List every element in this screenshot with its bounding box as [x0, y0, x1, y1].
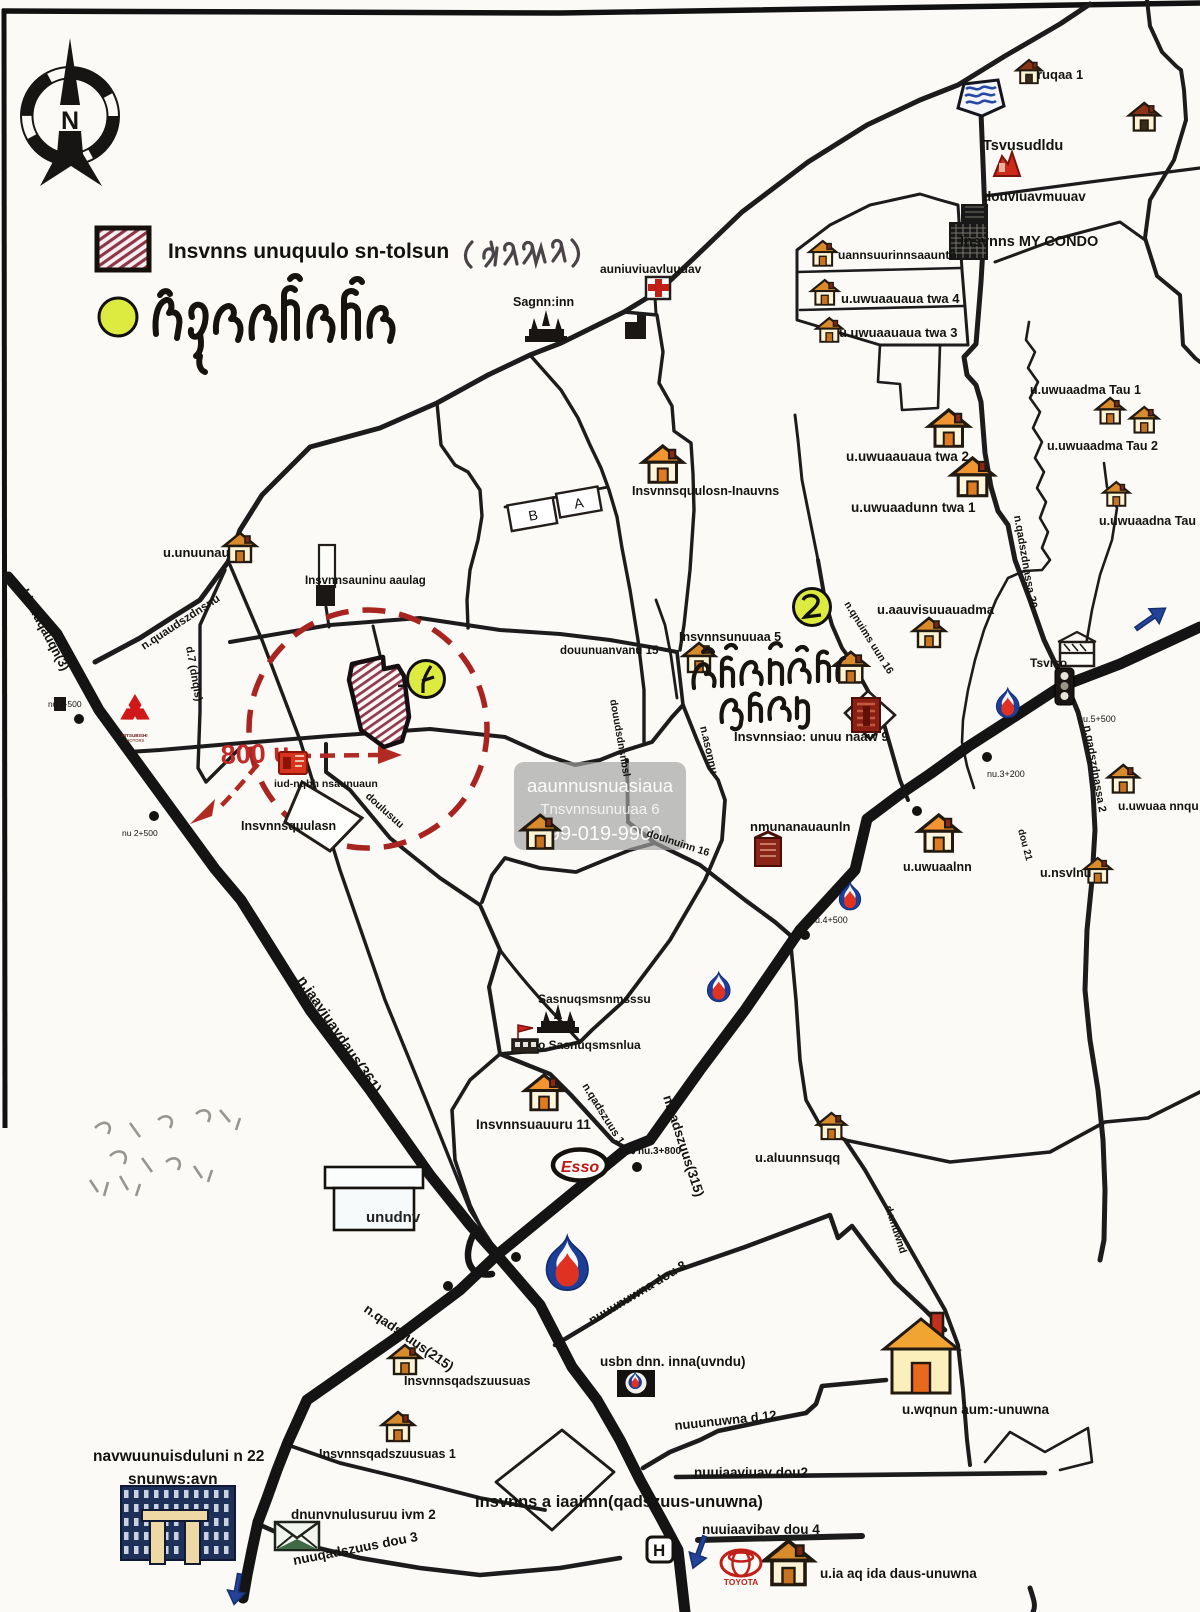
svg-text:Tnsvnnsunuuaa 6: Tnsvnnsunuuaa 6: [540, 801, 659, 818]
svg-text:iud-nqbh nsaunuaun: iud-nqbh nsaunuaun: [274, 778, 378, 790]
svg-text:TOYOTA: TOYOTA: [724, 1577, 759, 1587]
svg-text:Insvnnsunuuaa 5: Insvnnsunuuaa 5: [679, 630, 781, 644]
svg-text:u.uwuaauaua twa 2: u.uwuaauaua twa 2: [846, 449, 969, 464]
svg-text:nu.3+800: nu.3+800: [638, 1146, 682, 1157]
svg-text:Insvnnsiao: unuu naaw 9: Insvnnsiao: unuu naaw 9: [734, 729, 889, 744]
svg-text:u.wqnun aum:-unuwna: u.wqnun aum:-unuwna: [902, 1402, 1049, 1417]
svg-text:MOTORS: MOTORS: [126, 738, 145, 743]
svg-text:Insvnns a iaaimn(qadszuus-unuw: Insvnns a iaaimn(qadszuus-unuwna): [475, 1493, 763, 1511]
svg-text:Insvnnsauninu aaulag: Insvnnsauninu aaulag: [305, 575, 426, 587]
svg-text:N: N: [61, 107, 79, 135]
svg-text:Insvnnsqadszuusuas: Insvnnsqadszuusuas: [404, 1374, 530, 1388]
svg-text:u.nsvlnu: u.nsvlnu: [1040, 866, 1091, 880]
svg-text:nu.5+500: nu.5+500: [1078, 714, 1116, 724]
svg-text:u.aauvisuuauadma: u.aauvisuuauadma: [877, 602, 995, 617]
svg-text:nmunanauaunln: nmunanauaunln: [750, 819, 850, 834]
svg-text:douunuanvanu 15: douunuanvanu 15: [560, 645, 659, 657]
svg-text:Tsviso: Tsviso: [1030, 656, 1067, 670]
svg-text:Sasnuqsmsnmsssu: Sasnuqsmsnmsssu: [538, 992, 651, 1006]
svg-text:u.uwuaadunn twa 1: u.uwuaadunn twa 1: [851, 500, 976, 515]
svg-text:u.uwuaauaua twa 4: u.uwuaauaua twa 4: [841, 291, 960, 306]
svg-text:nu.3+200: nu.3+200: [987, 769, 1025, 779]
svg-text:unudnv: unudnv: [366, 1209, 421, 1226]
svg-text:snunws:avn: snunws:avn: [128, 1471, 218, 1488]
svg-text:u.uwuaauaua twa 3: u.uwuaauaua twa 3: [839, 325, 957, 340]
svg-text:nuuiaaviuav dou2: nuuiaaviuav dou2: [694, 1465, 808, 1480]
svg-text:navwuunuisduluni n 22: navwuunuisduluni n 22: [93, 1448, 264, 1465]
svg-text:Insvnnsquulasn: Insvnnsquulasn: [241, 819, 336, 833]
svg-text:ruqaa 1: ruqaa 1: [1037, 67, 1083, 82]
svg-text:o Sasnuqsmsnlua: o Sasnuqsmsnlua: [538, 1038, 641, 1052]
svg-text:Insvnnsuauuru 11: Insvnnsuauuru 11: [476, 1117, 591, 1132]
svg-text:nu.4+500: nu.4+500: [810, 915, 848, 925]
svg-text:u.uwuaadma Tau 2: u.uwuaadma Tau 2: [1047, 439, 1158, 453]
svg-text:Sagnn:inn: Sagnn:inn: [513, 295, 574, 309]
svg-text:Esso: Esso: [561, 1159, 599, 1176]
svg-text:nu 2+500: nu 2+500: [122, 828, 158, 838]
svg-text:Insvnnsquulosn-Inauvns: Insvnnsquulosn-Inauvns: [632, 484, 779, 498]
svg-text:u.uwuaadna Tau: u.uwuaadna Tau: [1099, 514, 1196, 528]
svg-text:nuuiaavibav dou 4: nuuiaavibav dou 4: [702, 1522, 820, 1537]
svg-text:dnunvnulusuruu ivm 2: dnunvnulusuruu ivm 2: [291, 1507, 436, 1522]
svg-text:H: H: [653, 1541, 665, 1560]
svg-text:Insvnnsqadszuusuas 1: Insvnnsqadszuusuas 1: [319, 1447, 456, 1461]
svg-text:usbn dnn. inna(uvndu): usbn dnn. inna(uvndu): [600, 1354, 745, 1369]
svg-text:u.unuunau: u.unuunau: [163, 545, 229, 560]
svg-text:u.uwuaalnn: u.uwuaalnn: [903, 860, 972, 874]
svg-text:uannsuurinnsaauntn: uannsuurinnsaauntn: [838, 248, 957, 262]
svg-text:u.uwuaa nnqu: u.uwuaa nnqu: [1118, 799, 1199, 813]
svg-text:douviuavmuuav: douviuavmuuav: [983, 189, 1086, 204]
svg-text:aaunnusnuasiaua: aaunnusnuasiaua: [527, 775, 674, 796]
svg-text:u.ia aq ida daus-unuwna: u.ia aq ida daus-unuwna: [820, 1566, 977, 1581]
svg-text:nu 2-500: nu 2-500: [48, 699, 82, 709]
svg-text:Insvnns MY CONDO: Insvnns MY CONDO: [960, 234, 1098, 250]
svg-text:u.aluunnsuqq: u.aluunnsuqq: [755, 1150, 840, 1165]
svg-text:u.uwuaadma Tau 1: u.uwuaadma Tau 1: [1030, 383, 1141, 397]
svg-text:auniuviuavluuuav: auniuviuavluuuav: [600, 262, 702, 276]
svg-text:Insvnns unuquulo sn-tolsun: Insvnns unuquulo sn-tolsun: [168, 240, 449, 263]
svg-text:Tsvusudldu: Tsvusudldu: [983, 138, 1063, 154]
